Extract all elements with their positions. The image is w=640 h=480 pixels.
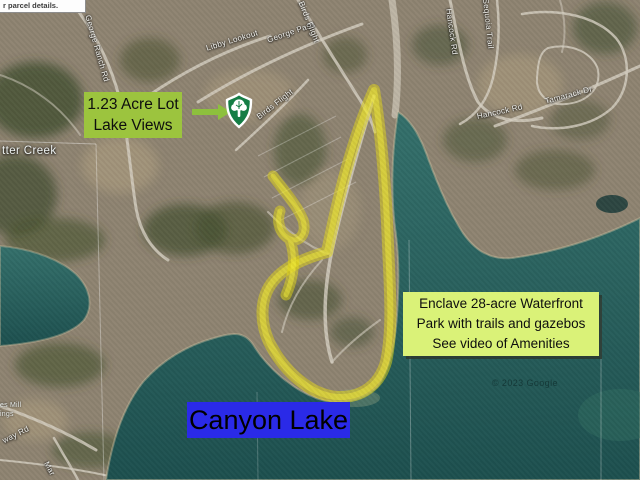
lot-marker-pin[interactable] — [225, 92, 253, 135]
lot-callout-line2: Lake Views — [84, 115, 182, 136]
enclave-line1: Enclave 28-acre Waterfront — [403, 294, 599, 314]
lot-callout: 1.23 Acre Lot Lake Views — [84, 92, 182, 138]
google-attribution: © 2023 Google — [492, 378, 558, 388]
enclave-callout: Enclave 28-acre Waterfront Park with tra… — [403, 292, 599, 356]
lot-callout-line1: 1.23 Acre Lot — [84, 94, 182, 115]
tree-shield-icon — [225, 92, 253, 130]
lake-name-label: Canyon Lake — [187, 402, 350, 438]
parcel-details-notice: r parcel details. — [0, 0, 86, 13]
place-label-mill-line2: ings — [0, 411, 14, 418]
satellite-map[interactable]: George Ranch Rd Libby Lookout George Pas… — [0, 0, 640, 480]
enclave-line2: Park with trails and gazebos — [403, 314, 599, 334]
place-label-mill-line1: es Mill — [0, 402, 21, 409]
enclave-line3: See video of Amenities — [403, 334, 599, 354]
place-label-otter-creek: tter Creek — [2, 145, 57, 157]
